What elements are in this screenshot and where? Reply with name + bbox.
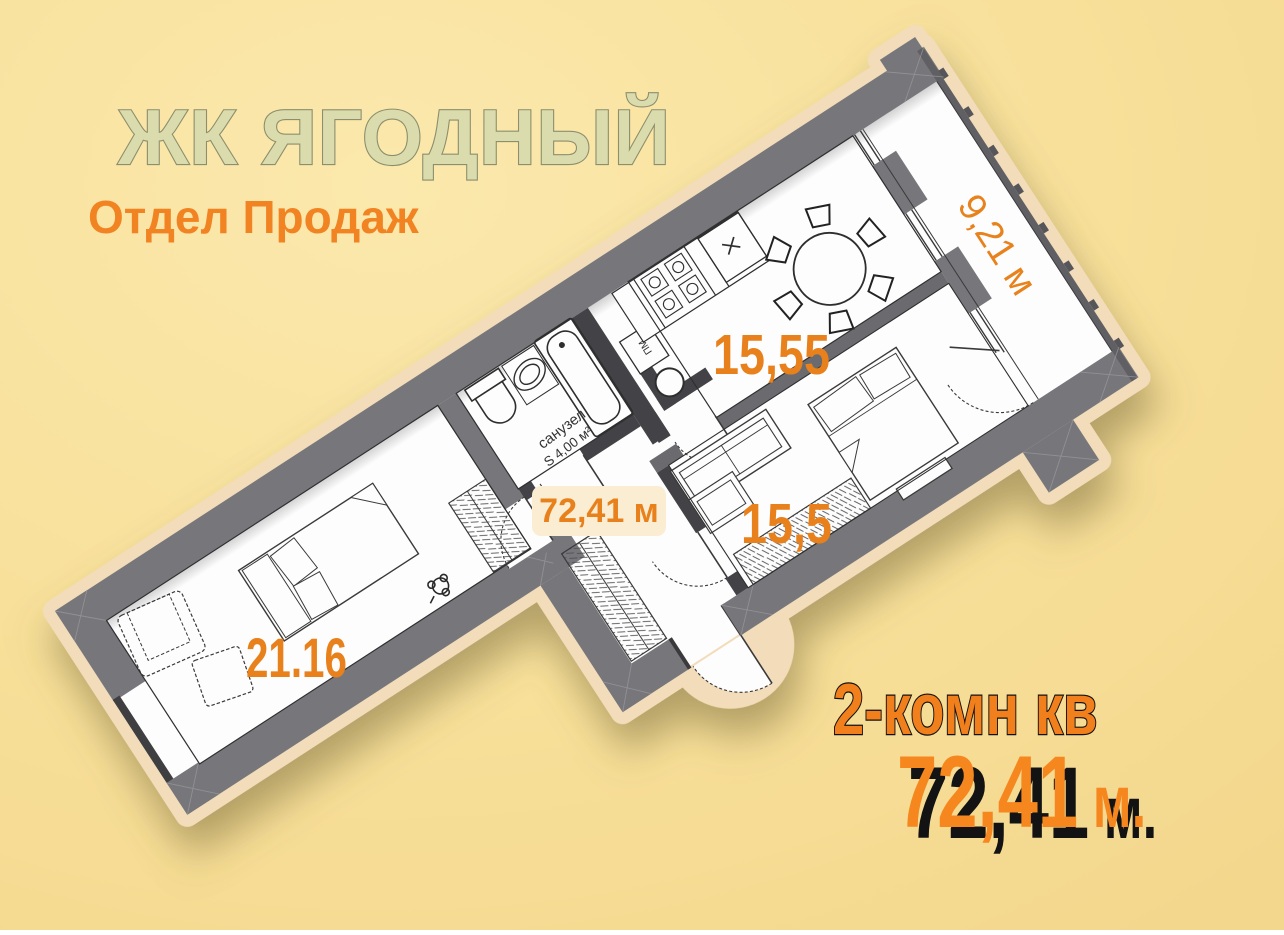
svg-text:72,41 м: 72,41 м (539, 492, 659, 530)
svg-text:Отдел Продаж: Отдел Продаж (88, 191, 419, 243)
svg-text:15,55: 15,55 (713, 324, 830, 387)
svg-text:21.16: 21.16 (246, 628, 347, 690)
svg-text:ЖК ЯГОДНЫЙ: ЖК ЯГОДНЫЙ (117, 93, 671, 181)
svg-text:15,5: 15,5 (741, 493, 832, 556)
